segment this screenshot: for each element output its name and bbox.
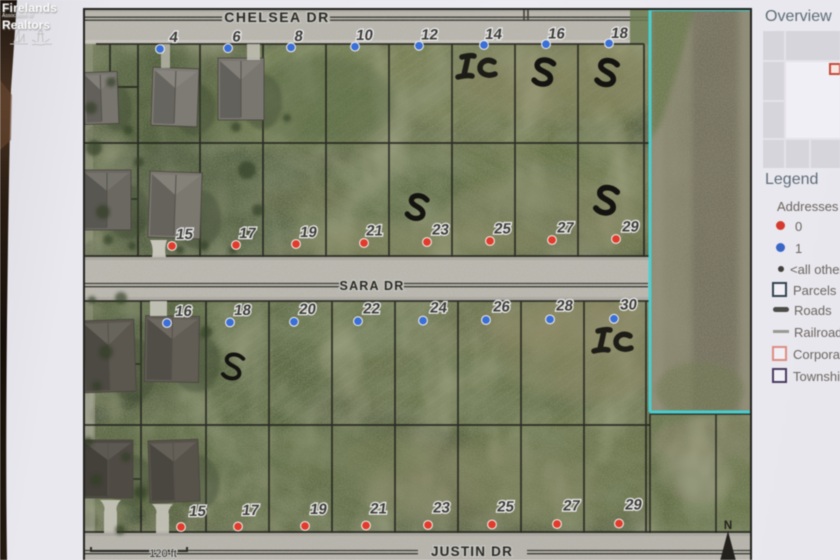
svg-text:14: 14 xyxy=(484,26,504,43)
svg-text:30: 30 xyxy=(619,297,638,314)
svg-text:15: 15 xyxy=(175,226,194,243)
svg-text:29: 29 xyxy=(624,497,643,514)
svg-text:24: 24 xyxy=(429,299,449,316)
svg-text:17: 17 xyxy=(241,502,260,519)
svg-text:16: 16 xyxy=(174,303,193,320)
svg-text:10: 10 xyxy=(355,27,374,44)
svg-text:17: 17 xyxy=(238,225,257,242)
svg-text:16: 16 xyxy=(547,25,566,42)
svg-text:23: 23 xyxy=(431,222,450,239)
svg-text:25: 25 xyxy=(493,221,512,238)
svg-text:28: 28 xyxy=(555,298,574,315)
svg-text:19: 19 xyxy=(299,224,318,241)
svg-text:20: 20 xyxy=(298,301,317,318)
svg-text:120 ft: 120 ft xyxy=(149,548,177,560)
svg-text:18: 18 xyxy=(610,25,629,42)
svg-text:26: 26 xyxy=(492,299,511,316)
svg-text:22: 22 xyxy=(362,300,381,317)
svg-text:21: 21 xyxy=(369,500,388,517)
svg-text:27: 27 xyxy=(556,219,575,236)
svg-text:15: 15 xyxy=(188,503,207,520)
svg-text:18: 18 xyxy=(233,302,252,319)
svg-text:25: 25 xyxy=(496,499,515,516)
svg-text:19: 19 xyxy=(309,501,328,518)
svg-text:23: 23 xyxy=(432,499,451,516)
svg-text:29: 29 xyxy=(621,218,640,235)
svg-text:27: 27 xyxy=(562,498,581,515)
svg-text:21: 21 xyxy=(365,223,384,240)
svg-text:N: N xyxy=(724,520,732,532)
svg-text:12: 12 xyxy=(420,27,439,44)
